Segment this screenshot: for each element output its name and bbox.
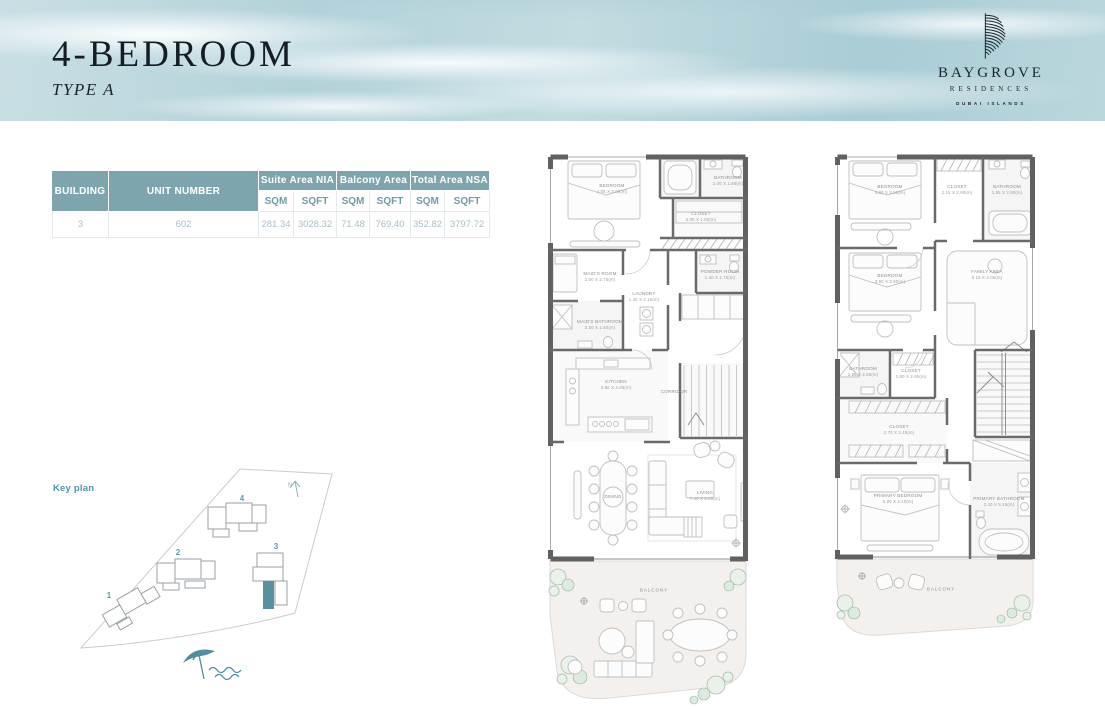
- room-label: BATHROOM1.95 X 2.90(m): [992, 184, 1023, 196]
- room-label: CLOSET3.70 X 2.45(m): [884, 424, 915, 436]
- room-label: LIVING7.40 X 5.05(m): [690, 490, 721, 502]
- col-header-balcony-area: Balcony Area: [337, 171, 411, 191]
- brand-location: DUBAI ISLANDS: [925, 101, 1057, 106]
- room-label: BATHROOM1.85 X 2.85(m): [848, 366, 879, 378]
- header-banner: 4-BEDROOM TYPE A BAYGROVE: [0, 0, 1105, 121]
- key-plan-label: Key plan: [53, 483, 94, 494]
- room-label: CLOSET2.15 X 2.90(m): [942, 184, 973, 196]
- key-plan: 1 2 3 4 N Key plan: [45, 455, 355, 695]
- cell-suite-sqm: 281.34: [259, 212, 294, 238]
- unit-header-sqm: SQM: [411, 191, 445, 212]
- room-label: MAID'S BATHROOM2.50 X 1.50(m): [577, 319, 623, 331]
- col-header-unit-number: UNIT NUMBER: [109, 171, 259, 212]
- waves-icon: [209, 668, 241, 680]
- room-label: BEDROOM3.60 X 3.90(m): [875, 184, 906, 196]
- balcony-slab: [837, 559, 1033, 635]
- room-label: FAMILY AREA5.15 X 4.05(m): [971, 269, 1003, 281]
- room-label: CLOSET2.00 X 1.80(m): [686, 211, 717, 223]
- brand-logo: BAYGROVE RESIDENCES DUBAI ISLANDS: [925, 9, 1057, 106]
- unit-header-sqm: SQM: [337, 191, 370, 212]
- cell-balcony-sqm: 71.48: [337, 212, 370, 238]
- cell-total-sqft: 3797.72: [445, 212, 490, 238]
- floor-plan-lower-drawing: [548, 153, 748, 705]
- unit-header-sqft: SQFT: [445, 191, 490, 212]
- room-label: DINING: [604, 494, 621, 500]
- beach-umbrella-icon: [183, 650, 215, 680]
- cell-unit-number: 602: [109, 212, 259, 238]
- col-header-total-area: Total Area NSA: [411, 171, 490, 191]
- col-header-building: BUILDING: [52, 171, 109, 212]
- hero-text: 4-BEDROOM TYPE A: [52, 36, 295, 100]
- unit-header-sqft: SQFT: [370, 191, 411, 212]
- floor-plan-upper: BEDROOM3.60 X 3.90(m) CLOSET2.15 X 2.90(…: [835, 153, 1035, 650]
- col-header-suite-area: Suite Area NIA: [259, 171, 337, 191]
- page-title: 4-BEDROOM: [52, 36, 295, 73]
- room-label: PRIMARY BATHROOM2.40 X 5.15(m): [973, 496, 1024, 508]
- floor-plan-upper-drawing: [835, 153, 1035, 650]
- room-label: LAUNDRY1.40 X 2.10(m): [629, 291, 660, 303]
- room-label: KITCHEN3.80 X 4.05(m): [601, 379, 632, 391]
- unit-header-sqm: SQM: [259, 191, 294, 212]
- page-subtitle: TYPE A: [52, 80, 295, 100]
- room-label: MAID'S ROOM2.00 X 2.75(m): [583, 271, 616, 283]
- room-label: BEDROOM3.60 X 3.90(m): [875, 273, 906, 285]
- cell-building: 3: [52, 212, 109, 238]
- highlighted-unit: [263, 581, 274, 609]
- balcony-label: BALCONY: [640, 588, 668, 593]
- brochure-page: 4-BEDROOM TYPE A BAYGROVE: [0, 0, 1105, 709]
- leaf-logo-icon: [974, 9, 1008, 63]
- building-number-3: 3: [274, 542, 279, 551]
- cell-suite-sqft: 3028.32: [294, 212, 337, 238]
- room-label: CORRIDOR: [661, 389, 688, 395]
- table-row: 3 602 281.34 3028.32 71.48 769.40 352.82…: [52, 212, 490, 238]
- brand-sub: RESIDENCES: [925, 85, 1057, 93]
- cell-total-sqm: 352.82: [411, 212, 445, 238]
- floor-plan-lower: BEDROOM4.05 X 3.90(m) BATHROOM2.00 X 1.8…: [548, 153, 748, 705]
- building-number-4: 4: [240, 494, 245, 503]
- room-label: CLOSET1.80 X 2.90(m): [896, 368, 927, 380]
- balcony-label: BALCONY: [927, 587, 955, 592]
- building-number-1: 1: [107, 591, 112, 600]
- brand-name: BAYGROVE: [925, 65, 1057, 82]
- cell-balcony-sqft: 769.40: [370, 212, 411, 238]
- room-label: BATHROOM2.00 X 1.85(m): [713, 175, 744, 187]
- building-number-2: 2: [176, 548, 181, 557]
- room-label: PRIMARY BEDROOM5.20 X 4.10(m): [874, 493, 923, 505]
- room-label: BEDROOM4.05 X 3.90(m): [597, 183, 628, 195]
- room-label: POWDER ROOM1.40 X 1.70(m): [701, 269, 739, 281]
- area-table: BUILDING UNIT NUMBER Suite Area NIA Balc…: [52, 171, 490, 238]
- unit-header-sqft: SQFT: [294, 191, 337, 212]
